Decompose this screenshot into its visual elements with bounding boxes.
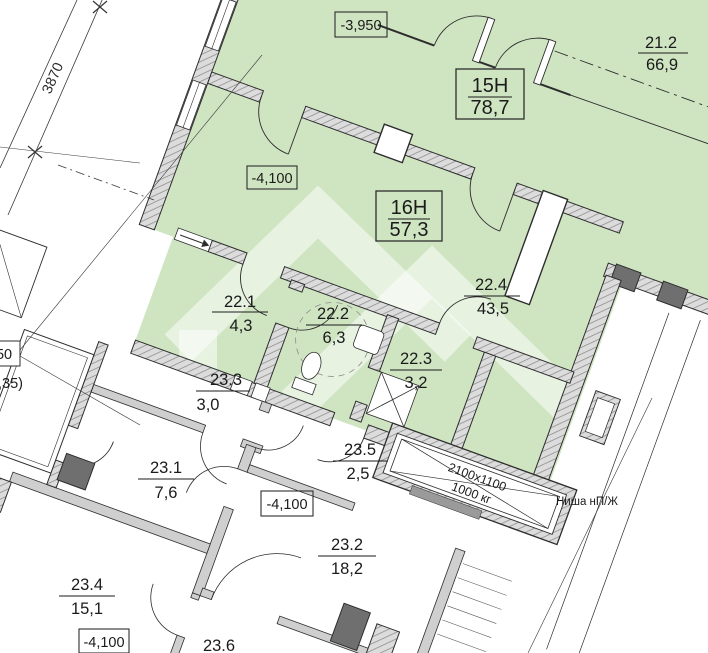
room-number: 15Н <box>472 75 509 97</box>
room-area: 2,5 <box>347 465 370 483</box>
room-number: 23.6 <box>203 637 235 653</box>
room-number: 23.3 <box>210 371 242 389</box>
room-area: 18,2 <box>331 560 363 578</box>
room-area: 6,3 <box>323 329 346 347</box>
room-number: 22.4 <box>475 276 507 294</box>
elevation-value: -4,100 <box>251 171 292 187</box>
room-area: 66,9 <box>646 56 678 74</box>
room-number: 23.5 <box>344 441 376 459</box>
room-number: 23.2 <box>331 536 363 554</box>
room-number: 22.1 <box>224 293 256 311</box>
niche-label: Ниша нП/Ж <box>556 496 618 508</box>
left-label-35: ,35) <box>0 376 23 392</box>
room-area: 43,5 <box>477 300 509 318</box>
room-number: 23.4 <box>71 576 103 594</box>
left-label-50: 50 <box>0 347 12 363</box>
room-label-23-6: 23.6 <box>203 637 235 653</box>
room-number: 22.3 <box>400 350 432 368</box>
room-area: 57,3 <box>390 219 429 241</box>
room-number: 23.1 <box>150 459 182 477</box>
room-area: 7,6 <box>155 484 178 502</box>
room-area: 3,2 <box>405 374 428 392</box>
room-area: 4,3 <box>230 317 253 335</box>
floor-plan-page: 2100x1100 1000 кг <box>0 0 708 653</box>
room-area: 15,1 <box>71 600 103 618</box>
room-number: 21.2 <box>645 34 677 52</box>
room-number: 16Н <box>391 197 428 219</box>
room-number: 22.2 <box>317 305 349 323</box>
room-area: 78,7 <box>471 97 510 119</box>
elevation-value: -4,100 <box>266 497 307 513</box>
floor-plan-drawing: 2100x1100 1000 кг <box>0 0 708 653</box>
elevation-value: -3,950 <box>340 18 381 34</box>
room-area: 3,0 <box>197 396 220 414</box>
elevation-value: -4,100 <box>83 635 124 651</box>
left-edge-labels: 50 ,35) <box>0 341 23 392</box>
